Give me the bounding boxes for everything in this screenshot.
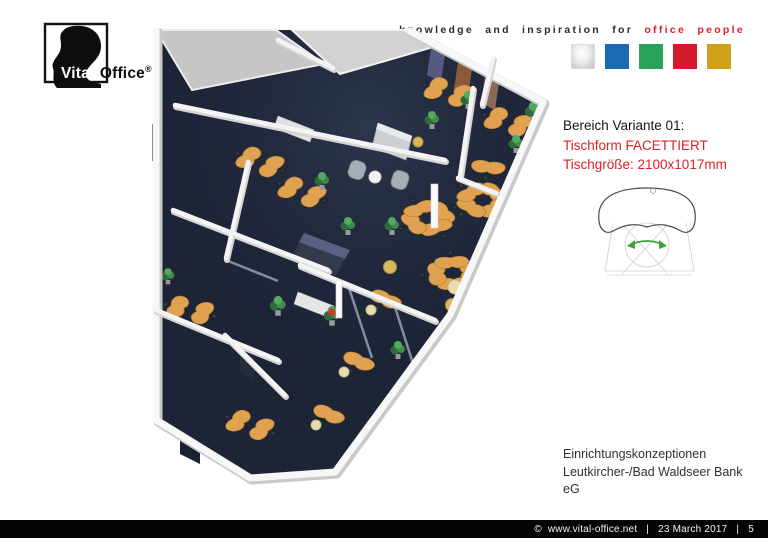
facetted-table-drawing	[583, 183, 723, 301]
tagline-brand-highlight: office people	[644, 24, 745, 36]
brand-color-squares	[571, 44, 731, 69]
table-shape-label: Tischform FACETTIERT	[563, 136, 727, 156]
office-floorplan-render	[128, 28, 576, 486]
blue-square	[605, 44, 629, 69]
footer-page-number: 5	[748, 524, 754, 535]
project-caption-line2: Leutkircher-/Bad Waldseer Bank	[563, 464, 742, 482]
footer-separator: |	[646, 524, 649, 535]
footer-website-link[interactable]: www.vital-office.net	[548, 524, 637, 535]
logo-word-prefix: Vital-	[61, 65, 100, 82]
project-caption-line1: Einrichtungskonzeptionen	[563, 446, 742, 464]
tabletop-outline	[599, 188, 696, 232]
project-caption-line3: eG	[563, 481, 742, 499]
footer-copyright-symbol: ©	[534, 524, 542, 535]
presentation-slide: Vital-Office® knowledge and inspiration …	[0, 0, 768, 543]
green-square	[639, 44, 663, 69]
footer-separator: |	[736, 524, 739, 535]
variant-annotation: Bereich Variante 01: Tischform FACETTIER…	[563, 116, 727, 175]
footer-bar: © www.vital-office.net | 23 March 2017 |…	[0, 520, 768, 538]
project-caption: Einrichtungskonzeptionen Leutkircher-/Ba…	[563, 446, 742, 499]
footer-date: 23 March 2017	[658, 524, 727, 535]
table-size-label: Tischgröße: 2100x1017mm	[563, 155, 727, 175]
fixing-point	[651, 189, 656, 194]
red-square	[673, 44, 697, 69]
rotation-arrow-icon	[627, 240, 667, 249]
gold-square	[707, 44, 731, 69]
variant-title: Bereich Variante 01:	[563, 116, 727, 136]
